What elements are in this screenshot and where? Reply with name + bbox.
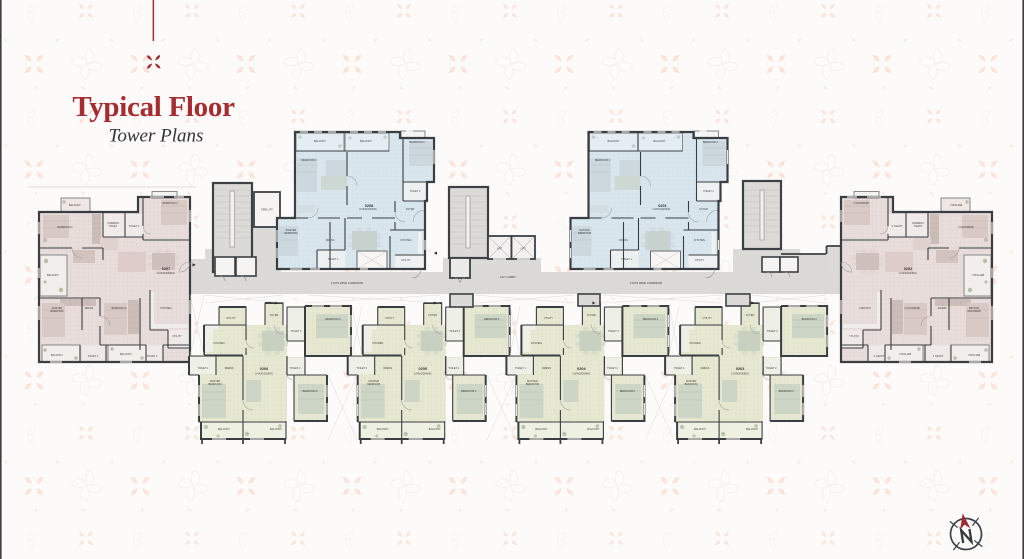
svg-text:BEDROOM 4: BEDROOM 4 (162, 202, 178, 205)
svg-text:0207: 0207 (162, 267, 170, 271)
svg-text:LIVING/DINING: LIVING/DINING (731, 373, 749, 376)
svg-text:0202: 0202 (904, 267, 912, 271)
svg-text:BEDROOM 3: BEDROOM 3 (409, 141, 425, 144)
svg-text:BALCONY: BALCONY (270, 428, 282, 431)
svg-text:TOILET 2: TOILET 2 (290, 367, 301, 370)
svg-text:LIFT: LIFT (521, 247, 527, 251)
svg-text:FOYER: FOYER (270, 314, 279, 317)
svg-text:FIRE LIFT: FIRE LIFT (261, 209, 273, 212)
svg-text:BEDROOM 2: BEDROOM 2 (302, 390, 318, 393)
svg-text:Typical Floor: Typical Floor (72, 91, 235, 123)
svg-text:TOILET 2: TOILET 2 (147, 355, 158, 358)
svg-text:UTILITY: UTILITY (226, 317, 236, 320)
svg-text:BEDROOM 3: BEDROOM 3 (57, 226, 73, 229)
svg-text:BALCONY: BALCONY (120, 353, 132, 356)
svg-text:DRESS: DRESS (225, 367, 234, 370)
svg-text:BEDROOM: BEDROOM (285, 232, 298, 235)
svg-text:KITCHEN: KITCHEN (214, 342, 225, 345)
svg-text:LIVING/DINING: LIVING/DINING (414, 373, 432, 376)
svg-text:BALCONY: BALCONY (51, 354, 63, 357)
svg-text:TOILET 3: TOILET 3 (291, 330, 302, 333)
svg-text:LIVING/DINING: LIVING/DINING (359, 208, 377, 211)
svg-text:LIVING/DINING: LIVING/DINING (899, 272, 917, 275)
svg-text:LIVING/DINING: LIVING/DINING (255, 373, 273, 376)
svg-text:LIVING/DINING: LIVING/DINING (573, 373, 591, 376)
svg-text:LIVING/DINING: LIVING/DINING (157, 272, 175, 275)
svg-text:0206: 0206 (260, 367, 268, 371)
svg-text:LIFT LOBBY: LIFT LOBBY (500, 275, 516, 279)
svg-text:BEDROOM: BEDROOM (51, 310, 64, 313)
svg-text:DRESS: DRESS (326, 239, 335, 242)
svg-text:BALCONY: BALCONY (360, 140, 372, 143)
svg-text:TOILET 1: TOILET 1 (198, 367, 209, 370)
svg-text:TOILET 2: TOILET 2 (410, 190, 421, 193)
svg-text:BALCONY: BALCONY (47, 274, 59, 277)
svg-text:TOILET 1: TOILET 1 (328, 258, 339, 261)
svg-text:BEDROOM 3: BEDROOM 3 (325, 318, 341, 321)
svg-text:TOILET 4: TOILET 4 (129, 225, 140, 228)
svg-text:LIFT: LIFT (497, 247, 503, 251)
svg-text:BALCONY: BALCONY (314, 140, 326, 143)
svg-text:BEDROOM: BEDROOM (209, 383, 222, 386)
svg-text:3 MTS WIDE CORRIDOR: 3 MTS WIDE CORRIDOR (630, 281, 662, 285)
svg-text:LIVING/DINING: LIVING/DINING (653, 208, 671, 211)
svg-text:TOILET: TOILET (109, 225, 118, 228)
svg-text:KITCHEN: KITCHEN (161, 307, 172, 310)
svg-text:0205: 0205 (418, 367, 426, 371)
svg-text:0203: 0203 (736, 367, 744, 371)
svg-text:Tower Plans: Tower Plans (109, 126, 204, 147)
svg-text:0204: 0204 (577, 367, 586, 371)
svg-text:UTILITY: UTILITY (172, 335, 182, 338)
svg-text:BEDROOM 2: BEDROOM 2 (301, 159, 317, 162)
svg-text:FOYER: FOYER (406, 208, 415, 211)
svg-text:BEDROOM 2: BEDROOM 2 (111, 307, 127, 310)
svg-text:KITCHEN: KITCHEN (401, 239, 412, 242)
svg-text:TOILET 1: TOILET 1 (88, 355, 99, 358)
svg-text:3 MTS WIDE CORRIDOR: 3 MTS WIDE CORRIDOR (331, 281, 363, 285)
svg-text:UTILITY: UTILITY (401, 259, 411, 262)
svg-text:BALCONY: BALCONY (69, 204, 81, 207)
svg-text:DRESS: DRESS (85, 307, 94, 310)
svg-text:BALCONY: BALCONY (218, 428, 230, 431)
